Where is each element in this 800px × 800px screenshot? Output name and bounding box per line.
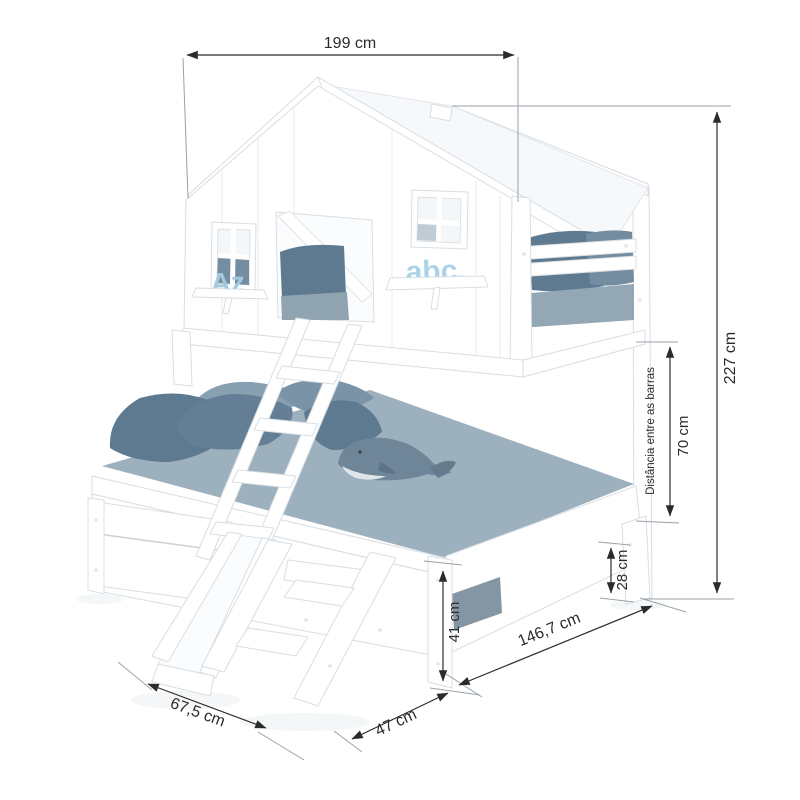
upper-pillow-doorway	[280, 245, 346, 299]
label-bars-distance-value: 70 cm	[675, 416, 692, 457]
label-top-width: 199 cm	[324, 35, 376, 52]
front-left-post	[172, 330, 192, 386]
dimension-bars-distance: Distância entre as barras 70 cm	[636, 342, 692, 523]
doorway-opening	[276, 211, 374, 322]
right-window-muntin-v	[436, 197, 442, 242]
label-stairs-depth: 47 cm	[373, 706, 420, 740]
front-left-leg	[88, 498, 104, 594]
label-bars-distance-text: Distância entre as barras	[645, 367, 657, 495]
diagram-canvas: Az abc.	[0, 0, 800, 800]
left-window-shelf	[192, 288, 268, 299]
label-leg-clearance: 28 cm	[614, 550, 631, 591]
label-base-height: 41 cm	[446, 602, 463, 643]
upper-bunk-right-section	[517, 230, 636, 328]
bunk-bed-drawing: Az abc.	[76, 77, 666, 731]
whale-eye	[358, 450, 361, 453]
facade-right-post	[510, 196, 532, 366]
bed-dimension-diagram: Az abc.	[0, 0, 800, 800]
upper-base-right-band	[523, 330, 645, 377]
upper-mattress-side	[520, 284, 634, 328]
right-window	[411, 190, 468, 249]
stairs-tread-lower	[236, 628, 308, 656]
label-total-height: 227 cm	[722, 332, 739, 384]
upper-mattress-doorway	[281, 292, 349, 320]
stairs-screw-2	[328, 664, 332, 668]
pillow-through-right-window	[417, 222, 438, 241]
stairs-screw-1	[304, 618, 308, 622]
